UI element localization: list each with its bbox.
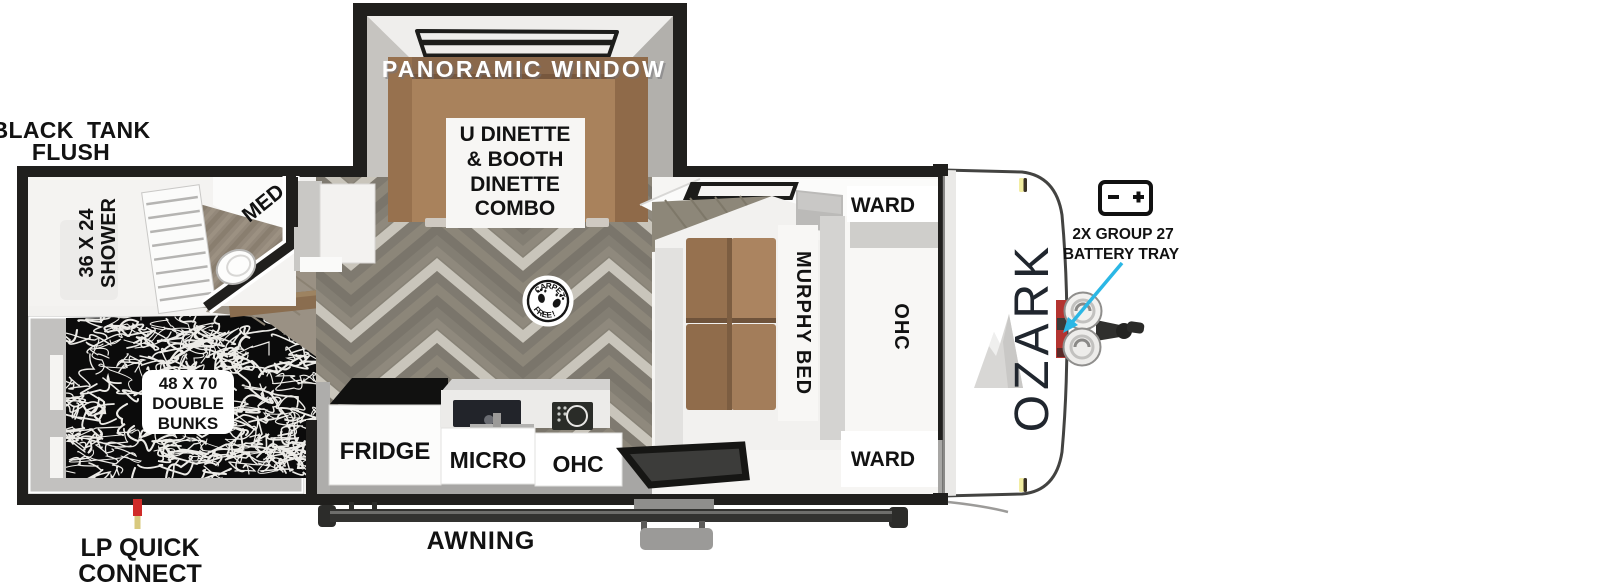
svg-text:BUNKS: BUNKS (158, 414, 218, 433)
svg-text:WARD: WARD (851, 448, 915, 471)
svg-text:OHC: OHC (552, 451, 603, 477)
svg-text:36 X 24: 36 X 24 (76, 208, 98, 278)
svg-text:MICRO: MICRO (450, 447, 527, 473)
svg-text:WARD: WARD (851, 194, 915, 217)
svg-text:SHOWER: SHOWER (98, 197, 120, 288)
svg-text:2X GROUP 27: 2X GROUP 27 (1072, 226, 1173, 243)
svg-text:FLUSH: FLUSH (32, 139, 110, 165)
svg-text:CONNECT: CONNECT (78, 560, 202, 586)
svg-text:DINETTE: DINETTE (470, 173, 560, 196)
svg-text:COMBO: COMBO (475, 197, 556, 220)
svg-text:OHC: OHC (890, 303, 912, 350)
svg-text:MURPHY BED: MURPHY BED (792, 251, 814, 395)
svg-text:LP QUICK: LP QUICK (81, 534, 200, 562)
svg-text:FRIDGE: FRIDGE (340, 438, 431, 465)
svg-text:U DINETTE: U DINETTE (460, 123, 571, 146)
svg-text:PANORAMIC WINDOW: PANORAMIC WINDOW (382, 56, 666, 82)
svg-text:DOUBLE: DOUBLE (152, 394, 224, 413)
svg-text:& BOOTH: & BOOTH (467, 148, 564, 171)
svg-text:OZARK: OZARK (1006, 242, 1059, 432)
svg-text:BATTERY TRAY: BATTERY TRAY (1063, 246, 1180, 263)
svg-text:48 X 70: 48 X 70 (159, 374, 218, 393)
svg-text:AWNING: AWNING (427, 527, 536, 555)
